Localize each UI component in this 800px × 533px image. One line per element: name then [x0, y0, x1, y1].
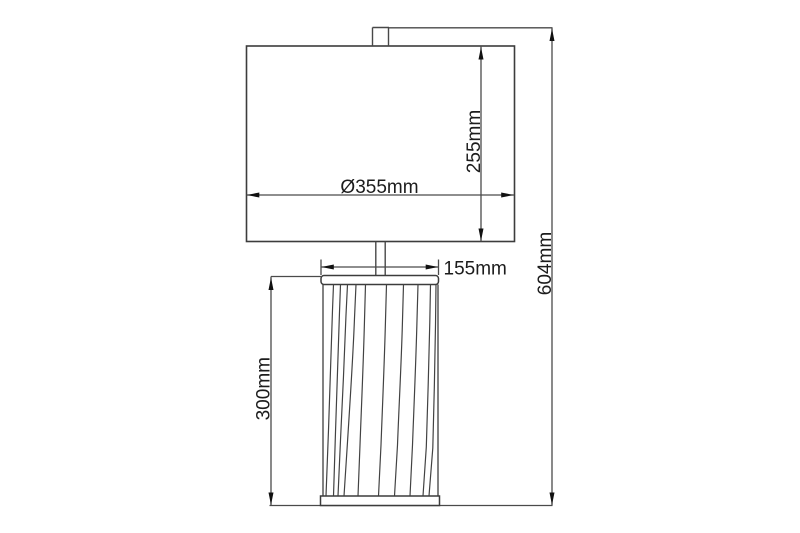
svg-text:255mm: 255mm — [464, 110, 485, 173]
svg-text:300mm: 300mm — [254, 357, 275, 420]
svg-text:Ø355mm: Ø355mm — [340, 177, 418, 198]
svg-text:155mm: 155mm — [444, 259, 507, 280]
svg-text:604mm: 604mm — [535, 232, 556, 295]
